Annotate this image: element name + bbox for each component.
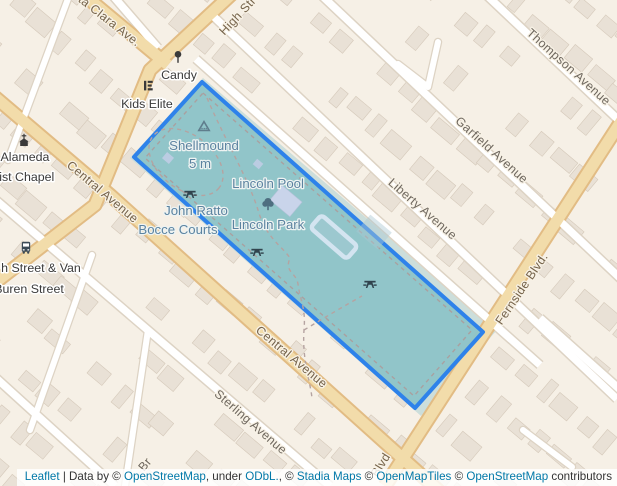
openstreetmap-link[interactable]: OpenStreetMap — [124, 470, 206, 483]
openmaptiles-link[interactable]: OpenMapTiles — [376, 470, 451, 483]
poi-label-alameda-baptist-chapel-2: Baptist Chapel — [0, 170, 54, 184]
shop-icon — [144, 81, 153, 91]
attr-text-6: contributors — [548, 470, 612, 483]
poi-label-kids-elite: Kids Elite — [121, 97, 173, 111]
poi-label-lincoln-pool: Lincoln Pool — [232, 176, 304, 191]
leaflet-link[interactable]: Leaflet — [25, 470, 60, 483]
odbl-link[interactable]: ODbL. — [245, 470, 279, 483]
poi-label-john-ratto-bocce-courts-2: Bocce Courts — [138, 222, 218, 237]
poi-label-john-ratto-bocce-courts-1: John Ratto — [164, 203, 228, 218]
poi-label-shellmound-2: 5 m — [189, 156, 211, 171]
poi-label-bus-stop-high-van-buren-2: Buren Street — [0, 282, 64, 296]
poi-label-lincoln-park: Lincoln Park — [232, 217, 305, 232]
attr-text-5: © — [451, 470, 466, 483]
attr-text-3: , © — [279, 470, 297, 483]
attribution-bar: Leaflet | Data by © OpenStreetMap, under… — [17, 469, 617, 486]
poi-lincoln-pool: Lincoln Pool — [232, 176, 304, 191]
attr-text-4: © — [361, 470, 376, 483]
poi-label-shellmound-1: Shellmound — [169, 138, 239, 153]
poi-label-alameda-baptist-chapel-1: Alameda — [1, 150, 50, 164]
attr-text-2: , under — [206, 470, 245, 483]
stadia-maps-link[interactable]: Stadia Maps — [297, 470, 361, 483]
map-canvas[interactable]: ta Clara Ave.High StreThompson AvenueGar… — [0, 0, 617, 486]
attr-text-1: | Data by © — [60, 470, 124, 483]
poi-label-candy: Candy — [161, 68, 198, 82]
map-viewport[interactable]: ta Clara Ave.High StreThompson AvenueGar… — [0, 0, 617, 486]
poi-label-bus-stop-high-van-buren-1: h Street & Van — [1, 261, 81, 275]
openstreetmap-link-2[interactable]: OpenStreetMap — [466, 470, 548, 483]
